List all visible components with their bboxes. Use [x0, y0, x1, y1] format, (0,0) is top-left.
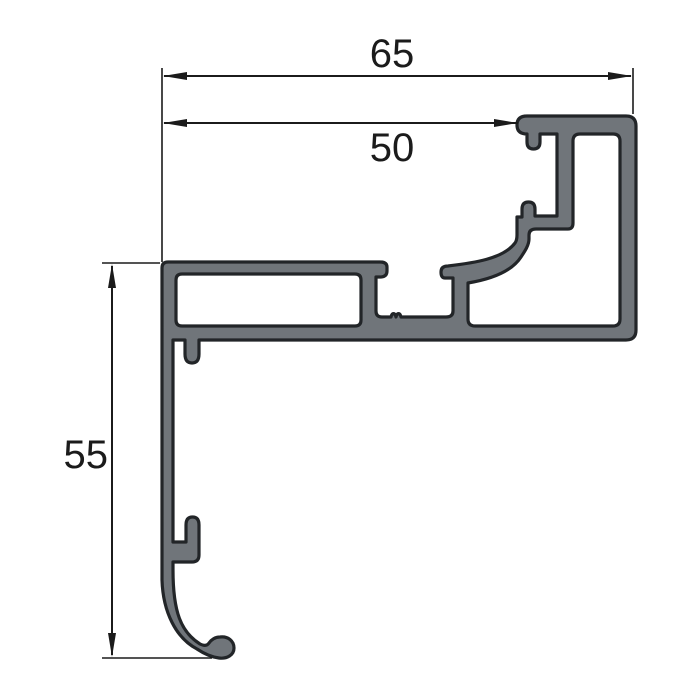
profile-outline-path [162, 116, 636, 658]
arrow-right-icon [608, 72, 632, 80]
dimension-height-55: 55 [64, 263, 213, 658]
dimension-label-50: 50 [370, 126, 415, 170]
arrow-left-icon [163, 72, 187, 80]
profile-shape [162, 116, 636, 658]
arrow-down-icon [108, 633, 116, 657]
profile-technical-drawing: 65 50 55 [0, 0, 700, 700]
dimension-width-50: 50 [163, 119, 518, 170]
arrow-left-icon [163, 119, 187, 127]
arrow-right-icon [494, 119, 518, 127]
drawing-canvas: 65 50 55 [0, 0, 700, 700]
arrow-up-icon [108, 264, 116, 288]
dimension-label-55: 55 [64, 433, 109, 477]
dimension-label-65: 65 [370, 32, 415, 76]
